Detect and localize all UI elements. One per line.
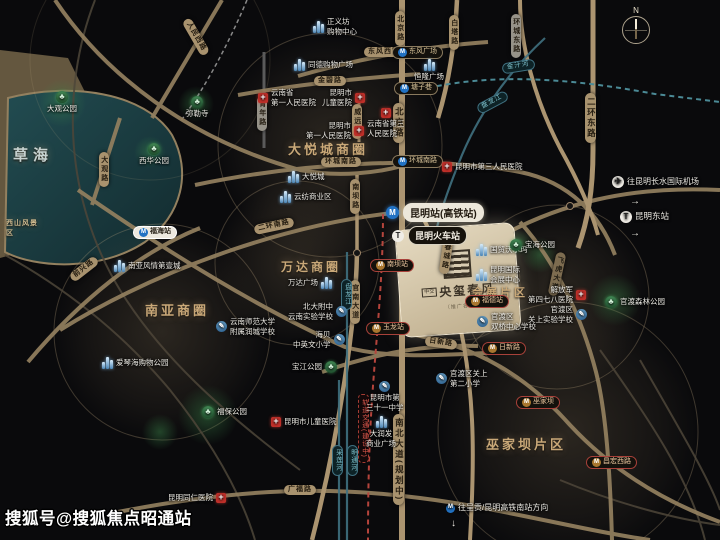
poi-hosp-shengyi: 云南省第一人民医院: [258, 88, 316, 108]
metro-icon: [398, 157, 407, 166]
river-cailian: 采莲河: [332, 445, 343, 476]
arrow-down-icon: ↓: [451, 518, 456, 529]
station-rixinlu: 日新路: [482, 342, 526, 355]
metro-icon: [376, 261, 385, 270]
poi-wanda-plaza: 万达广场: [288, 276, 332, 289]
school-icon: [334, 334, 345, 345]
building-icon: [102, 356, 113, 369]
station-fude: 福德站: [465, 295, 509, 308]
poi-school-guanshang-shiyan: 官渡区关上实验学校: [528, 305, 587, 325]
building-icon: [294, 58, 305, 71]
road-huanchengdong: 环城东路: [511, 14, 521, 58]
road-erhuandong: 二环东路: [585, 93, 596, 143]
poi-park-milesi: 弥勒寺: [186, 96, 209, 119]
zone-wanda: 万达商圈: [281, 258, 341, 275]
school-icon: [477, 316, 488, 327]
road-baita: 白塔路: [449, 15, 459, 50]
poi-park-fubao: 福保公园: [202, 406, 247, 418]
school-icon: [436, 373, 447, 384]
road-jinbi: 金碧路: [314, 76, 346, 86]
watermark: 搜狐号@搜狐焦点昭通站: [5, 505, 192, 529]
hospital-icon: [258, 93, 268, 103]
park-icon: [148, 143, 160, 155]
zone-wujiaba: 巫家坝片区: [486, 434, 566, 453]
station-wujiaba: 巫家坝: [516, 396, 560, 409]
poi-hosp-jiefangjun: 解放军第四七八医院: [528, 285, 586, 305]
arrow-right-icon: →: [630, 196, 640, 207]
direction-dong-station: 昆明东站: [620, 211, 669, 223]
hospital-icon: [216, 493, 226, 503]
metro-icon: [522, 398, 531, 407]
station-huanchengnanlu: 环城南路: [392, 155, 443, 168]
project-brand-prefix: 中交: [422, 287, 437, 297]
park-icon: [605, 296, 617, 308]
station-nanba: 南坝站: [370, 259, 414, 272]
school-icon: [576, 309, 587, 320]
station-kunming-hsr: 昆明站(高铁站): [386, 203, 484, 222]
metro-icon: [398, 48, 407, 57]
building-icon: [280, 190, 291, 203]
direction-airport: 往昆明长水国际机场: [612, 176, 699, 188]
park-icon: [56, 91, 68, 103]
train-icon: [620, 211, 632, 223]
poi-henglong: 恒隆广场: [414, 58, 444, 82]
poi-school-guanshang-erxiao: 官渡区关上第二小学: [436, 369, 488, 389]
building-icon: [114, 259, 125, 272]
arrow-right-icon: →: [630, 228, 640, 239]
zone-dayuecheng: 大悦城商圈: [288, 139, 368, 158]
poi-school-beida: 北大附中云南实验学校: [288, 302, 347, 322]
poi-hosp-tongren: 昆明同仁医院: [168, 493, 226, 503]
building-icon: [313, 20, 324, 33]
school-icon: [216, 321, 227, 332]
train-icon: [392, 230, 404, 242]
building-icon: [476, 268, 487, 281]
poi-tongde: 同德购物广场: [294, 58, 353, 71]
park-icon: [202, 406, 214, 418]
building-icon: [321, 276, 332, 289]
hospital-icon: [381, 108, 391, 118]
poi-park-daguan: 大观公园: [47, 91, 77, 114]
school-icon: [379, 381, 390, 392]
hospital-icon: [576, 290, 586, 300]
direction-chenggong: 往呈贡/昆明高铁南站方向: [446, 503, 548, 513]
metro-icon: [139, 228, 148, 237]
metro-icon: [386, 206, 399, 219]
metro-icon: [471, 297, 480, 306]
station-fuhai: 福海站: [133, 226, 177, 239]
poi-aiqinhai: 爱琴海购物公园: [102, 356, 169, 369]
poi-school-shuangqiao: 官渡区双桥中心学校: [477, 312, 536, 332]
zone-caohai: 草海: [13, 144, 53, 165]
station-tangzixiang: 塘子巷: [394, 82, 438, 95]
park-icon: [191, 96, 203, 108]
metro-icon: [592, 458, 601, 467]
road-huanchengnan: 环城南路: [321, 157, 361, 167]
metro-icon: [488, 344, 497, 353]
school-icon: [336, 306, 347, 317]
compass-north-label: N: [633, 6, 639, 15]
building-icon: [288, 170, 299, 183]
zone-xishan: 西山风景区: [6, 218, 40, 238]
building-icon: [424, 58, 435, 71]
station-yulong: 玉龙站: [366, 322, 410, 335]
metro-icon: [372, 324, 381, 333]
poi-zhengyifang: 正义坊购物中心: [313, 17, 357, 37]
road-nanba: 南坝路: [350, 179, 360, 214]
park-icon: [510, 239, 522, 251]
road-daguan: 大观路: [99, 152, 109, 187]
river-mingtong: 明通河: [347, 445, 358, 476]
station-kunming-railway: 昆明火车站: [392, 226, 467, 245]
poi-park-xihua: 西华公园: [139, 143, 169, 166]
road-guangfu: 广福路: [284, 485, 316, 495]
hospital-icon: [355, 93, 365, 103]
building-icon: [376, 415, 387, 428]
poi-nanya-yicheng: 南亚风情第壹城: [114, 259, 181, 272]
poi-hosp-shengsan: 云南省第三人民医院: [367, 108, 405, 139]
park-icon: [325, 361, 337, 373]
hospital-icon: [354, 126, 364, 136]
compass-ring: [622, 16, 650, 44]
poi-school-haibei: 海贝中英文小学: [293, 330, 345, 350]
poi-school-sanshiyi: 昆明市第三十一中学: [366, 381, 404, 413]
road-beijing-north: 北京路: [395, 11, 405, 46]
compass-needle-icon: [635, 19, 637, 39]
poi-school-shida: 云南师范大学附属润城学校: [216, 317, 275, 337]
poi-dayuecheng: 大悦城: [288, 170, 325, 183]
poi-park-baohai: 宝海公园: [510, 239, 555, 251]
hospital-icon: [442, 162, 452, 172]
metro-icon: [446, 504, 455, 513]
poi-park-guandu-forest: 官渡森林公园: [605, 296, 665, 308]
poi-guoji-huizhan: 昆明国际会展中心: [476, 265, 520, 285]
poi-darunfa: 大润发商业广场: [366, 415, 396, 449]
poi-park-baojiang: 宝江公园: [292, 361, 337, 373]
poi-yunfang: 云纺商业区: [280, 190, 332, 203]
airplane-icon: [612, 176, 624, 188]
location-map: 中交 央玺春风 （推广名） 草海 西山风景区 大悦城商圈 万达商圈 南亚商圈 会…: [0, 0, 720, 540]
building-icon: [476, 243, 487, 256]
poi-hosp-ertong: 昆明市儿童医院: [322, 88, 365, 108]
metro-icon: [400, 84, 409, 93]
poi-hosp-ertong-south: 昆明市儿童医院: [271, 417, 337, 427]
station-changhongxilu: 昌宏西路: [586, 456, 637, 469]
zone-nanya: 南亚商圈: [145, 300, 209, 319]
poi-hosp-shisan: 昆明市第三人民医院: [442, 162, 523, 172]
hospital-icon: [271, 417, 281, 427]
compass: N: [618, 6, 654, 44]
poi-hosp-shiyi: 昆明市第一人民医院: [306, 121, 364, 141]
